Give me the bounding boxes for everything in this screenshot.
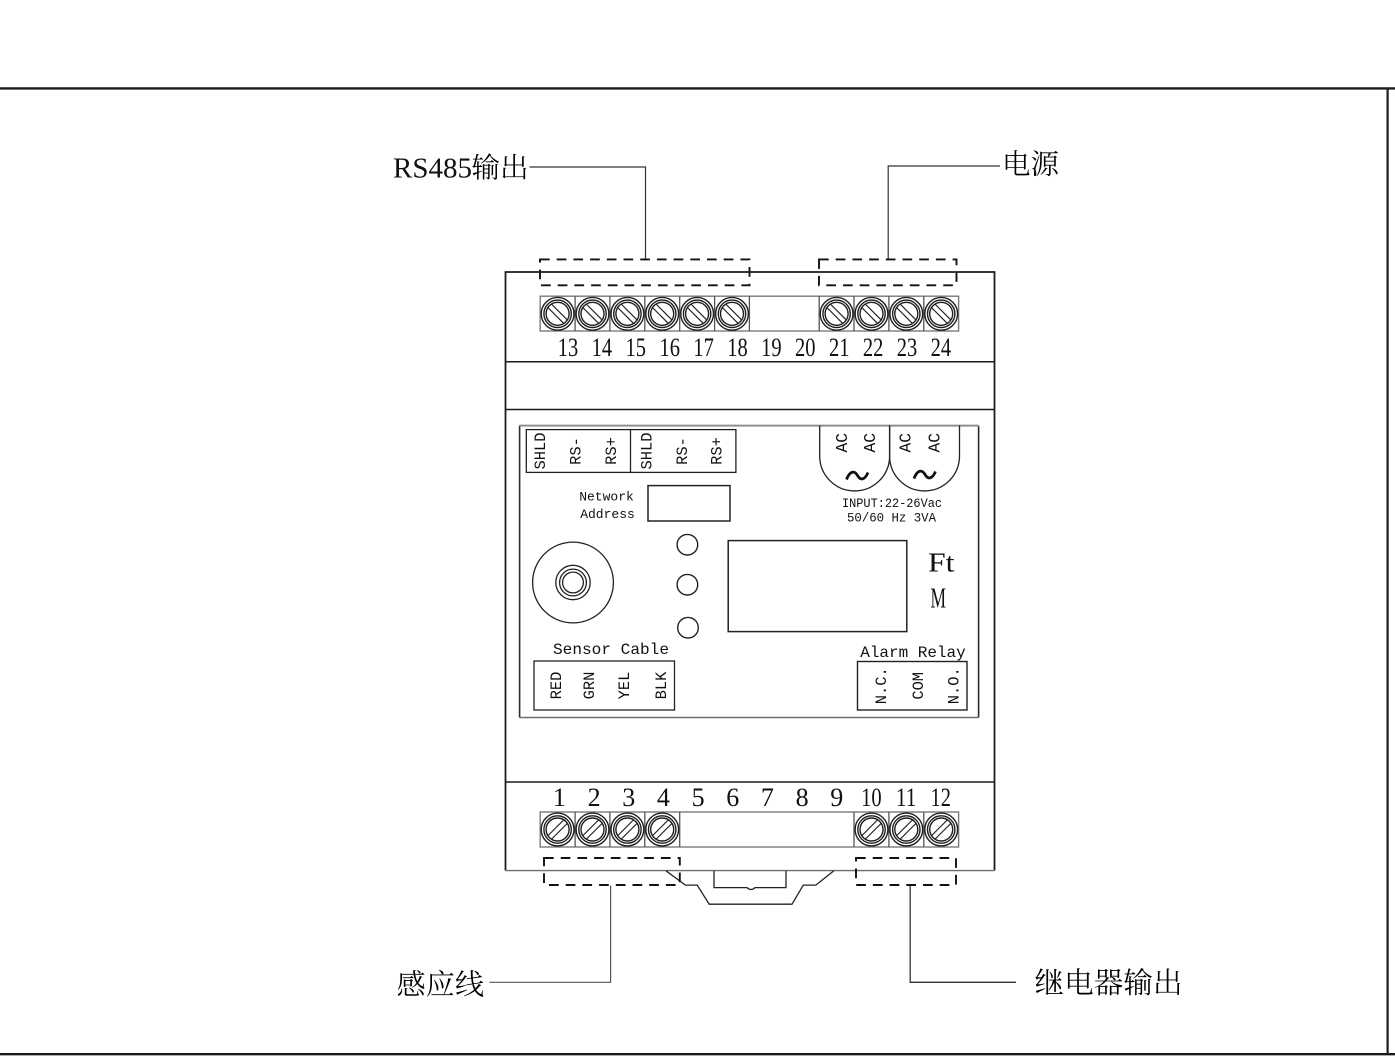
svg-text:AC: AC <box>833 433 852 453</box>
svg-text:131415161718192021222324: 131415161718192021222324 <box>558 333 951 362</box>
svg-text:INPUT:22-26Vac: INPUT:22-26Vac <box>842 496 942 511</box>
svg-text:RS485: RS485 <box>393 153 472 185</box>
svg-text:BLK: BLK <box>653 671 671 699</box>
svg-text:GRN: GRN <box>581 672 599 700</box>
svg-text:Sensor Cable: Sensor Cable <box>553 641 669 659</box>
svg-text:Network: Network <box>579 489 634 504</box>
svg-text:AC: AC <box>897 433 916 453</box>
svg-text:123456789101112: 123456789101112 <box>553 783 951 812</box>
svg-text:SHLD: SHLD <box>532 433 550 470</box>
svg-text:M: M <box>931 584 947 615</box>
svg-text:50/60 Hz 3VA: 50/60 Hz 3VA <box>847 511 936 526</box>
svg-text:Ft: Ft <box>928 548 955 578</box>
svg-text:SHLD: SHLD <box>639 433 657 470</box>
svg-text:AC: AC <box>926 433 945 453</box>
svg-text:Alarm Relay: Alarm Relay <box>860 644 966 662</box>
svg-text:N.O.: N.O. <box>946 667 964 704</box>
svg-text:YEL: YEL <box>616 672 634 700</box>
svg-text:RS+: RS+ <box>709 437 727 465</box>
svg-text:Address: Address <box>580 507 635 522</box>
svg-text:N.C.: N.C. <box>873 667 891 704</box>
svg-text:RS-: RS- <box>568 437 586 465</box>
svg-text:COM: COM <box>910 672 928 700</box>
svg-text:AC: AC <box>861 433 880 453</box>
svg-text:RED: RED <box>548 672 566 700</box>
svg-text:RS+: RS+ <box>603 437 621 465</box>
svg-text:RS-: RS- <box>674 437 692 465</box>
